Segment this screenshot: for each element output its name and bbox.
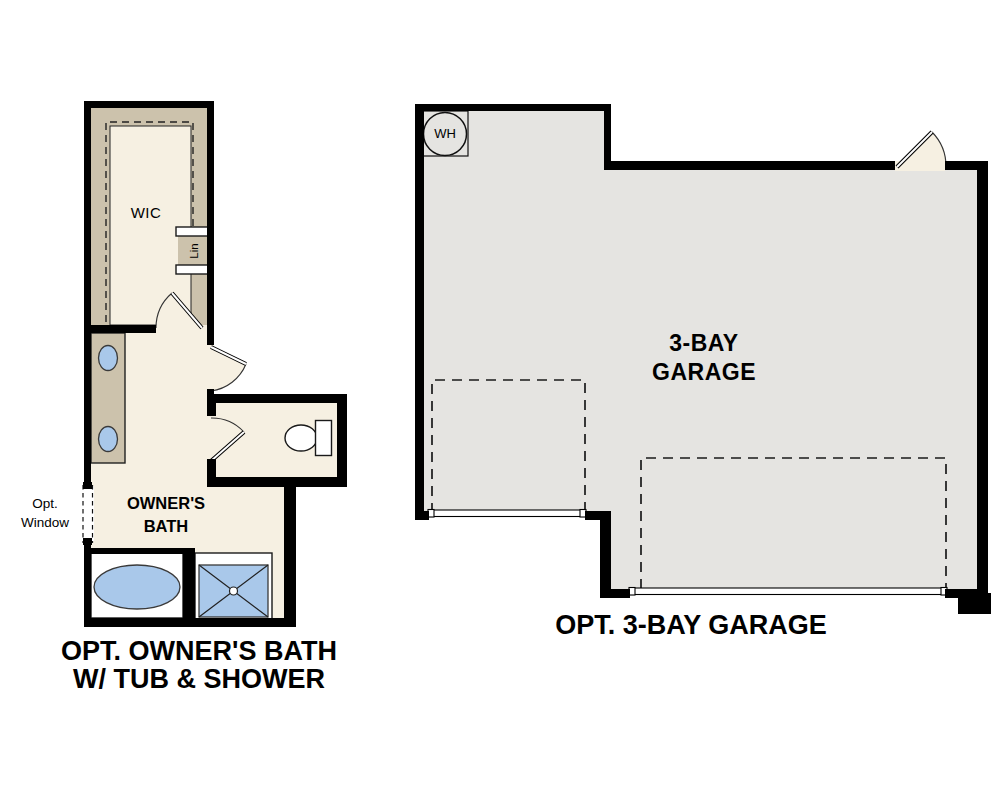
wall-segment	[604, 104, 611, 168]
wic-inner-floor	[110, 126, 191, 325]
wic-label: WIC	[131, 205, 162, 221]
wall-segment	[415, 104, 611, 111]
wall-pier	[958, 593, 991, 614]
wall-segment	[207, 403, 216, 416]
optional-window-label: Opt. Window	[21, 494, 69, 532]
garage-door-sill	[429, 510, 585, 517]
garage-label: 3-BAY GARAGE	[652, 329, 756, 387]
water-heater-label: WH	[434, 127, 456, 141]
garage-caption: OPT. 3-BAY GARAGE	[555, 611, 827, 639]
owners-bath-caption-line2: W/ TUB & SHOWER	[61, 665, 337, 693]
optional-window-label-line2: Window	[21, 513, 69, 532]
garage-label-line1: 3-BAY	[652, 329, 756, 358]
garage-door-right-bay	[629, 588, 947, 596]
optional-window-cap-top	[83, 482, 92, 489]
owners-bath-caption-line1: OPT. OWNER'S BATH	[61, 637, 337, 665]
wall-segment	[600, 589, 630, 598]
owners-bath-label: OWNER'S BATH	[127, 492, 205, 537]
linen-label: Lin	[188, 243, 200, 258]
wall-segment	[284, 487, 296, 627]
floor-plan-page: WIC Lin OWNER'S BATH Opt. Window WH 3-BA…	[0, 0, 1000, 800]
linen-shelf-bottom	[176, 265, 209, 274]
toilet-tank	[316, 421, 332, 456]
wall-segment	[84, 542, 91, 627]
owners-bath-label-line2: BATH	[127, 515, 205, 538]
owners-bath-caption: OPT. OWNER'S BATH W/ TUB & SHOWER	[61, 637, 337, 693]
garage-door-left-bay	[428, 510, 586, 518]
optional-window-cap-bottom	[83, 538, 92, 545]
wall-segment	[84, 101, 91, 486]
linen-shelf-top	[176, 227, 209, 236]
wall-segment	[415, 511, 429, 520]
wall-segment	[91, 548, 195, 554]
optional-window	[82, 482, 94, 545]
optional-window-label-line1: Opt.	[21, 494, 69, 513]
wall-segment	[207, 394, 347, 403]
wall-segment	[977, 161, 988, 593]
garage-label-line2: GARAGE	[652, 358, 756, 387]
toilet-bowl	[285, 425, 317, 451]
owners-bath-plan	[82, 101, 347, 627]
bathtub	[94, 565, 180, 609]
wall-segment	[207, 459, 216, 477]
wall-segment	[207, 333, 214, 345]
garage-door-sill	[630, 588, 946, 595]
shower-drain	[230, 587, 238, 595]
wall-segment	[84, 101, 214, 108]
vanity-sink-bottom	[99, 427, 118, 452]
wall-segment	[415, 104, 424, 520]
owners-bath-label-line1: OWNER'S	[127, 492, 205, 515]
wall-segment	[337, 394, 347, 487]
wall-segment	[207, 101, 214, 333]
vanity-sink-top	[99, 346, 118, 371]
wall-segment	[84, 325, 156, 333]
wall-segment	[183, 548, 195, 627]
wall-segment	[207, 477, 347, 487]
wall-segment	[604, 161, 895, 170]
wall-segment	[600, 511, 611, 598]
